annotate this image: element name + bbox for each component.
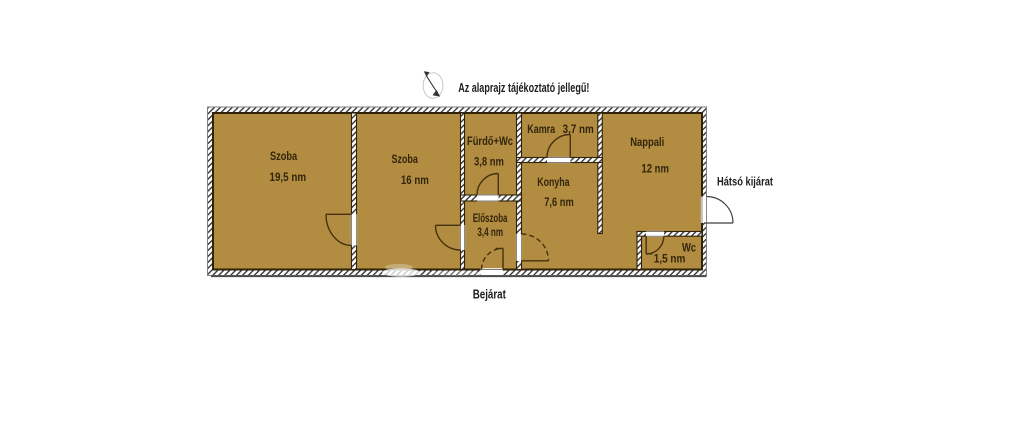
svg-text:Bejárat: Bejárat (473, 287, 507, 302)
svg-text:12 nm: 12 nm (641, 162, 669, 176)
svg-text:Előszoba: Előszoba (473, 211, 508, 225)
svg-text:Hátsó kijárat: Hátsó kijárat (717, 174, 773, 188)
svg-text:16 nm: 16 nm (401, 173, 429, 187)
svg-text:Kamra: Kamra (527, 122, 555, 136)
svg-text:Nappali: Nappali (630, 135, 664, 149)
svg-text:1,5 nm: 1,5 nm (654, 252, 686, 266)
svg-text:Szoba: Szoba (270, 149, 297, 163)
svg-text:19,5 nm: 19,5 nm (270, 170, 307, 184)
svg-text:3,8 nm: 3,8 nm (474, 155, 504, 169)
svg-text:Szoba: Szoba (392, 152, 419, 166)
svg-text:7,6 nm: 7,6 nm (544, 195, 574, 209)
svg-text:3,7 nm: 3,7 nm (563, 122, 594, 136)
svg-text:3,4 nm: 3,4 nm (477, 225, 503, 239)
svg-text:Fürdő+Wc: Fürdő+Wc (467, 134, 513, 148)
svg-text:Konyha: Konyha (537, 175, 569, 189)
svg-text:Az alaprajz tájékoztató jelleg: Az alaprajz tájékoztató jellegű! (458, 80, 589, 95)
